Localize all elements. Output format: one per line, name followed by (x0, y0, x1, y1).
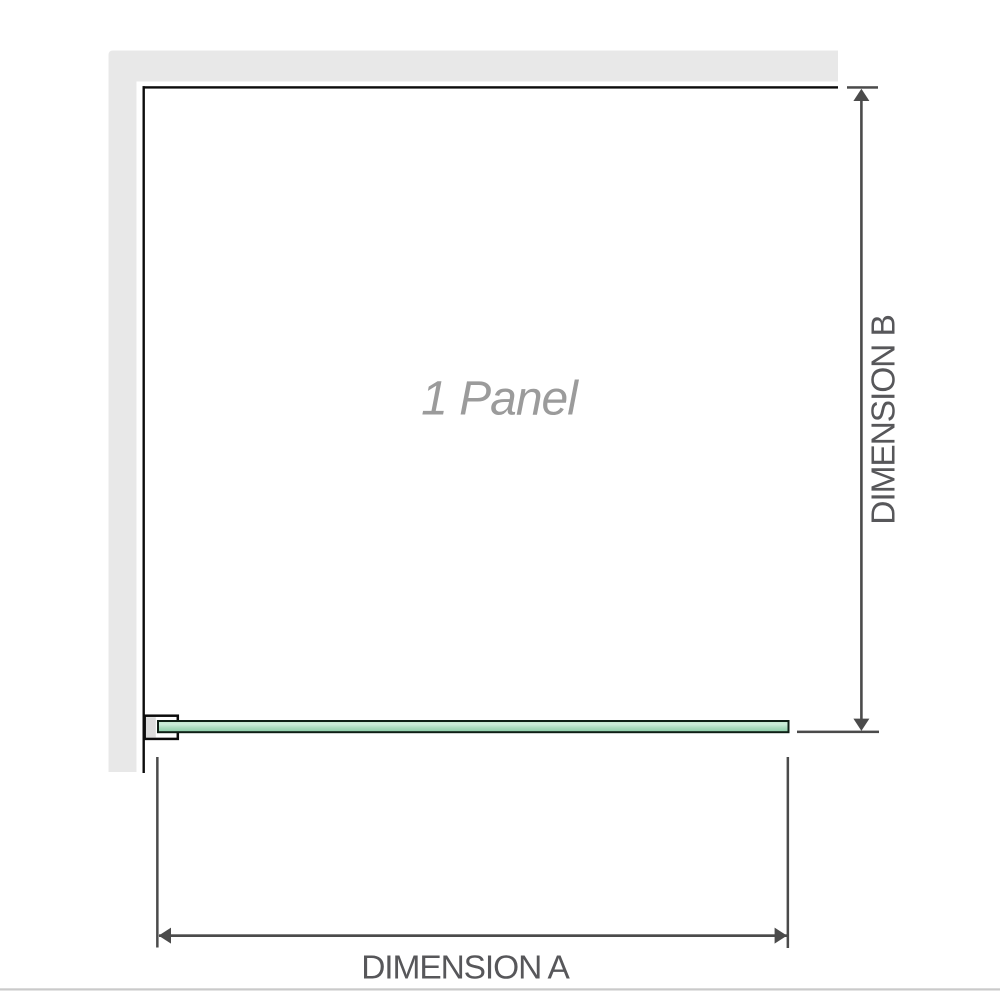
svg-text:DIMENSION A: DIMENSION A (361, 950, 570, 987)
svg-text:1 Panel: 1 Panel (421, 372, 579, 425)
svg-text:DIMENSION B: DIMENSION B (866, 315, 903, 524)
